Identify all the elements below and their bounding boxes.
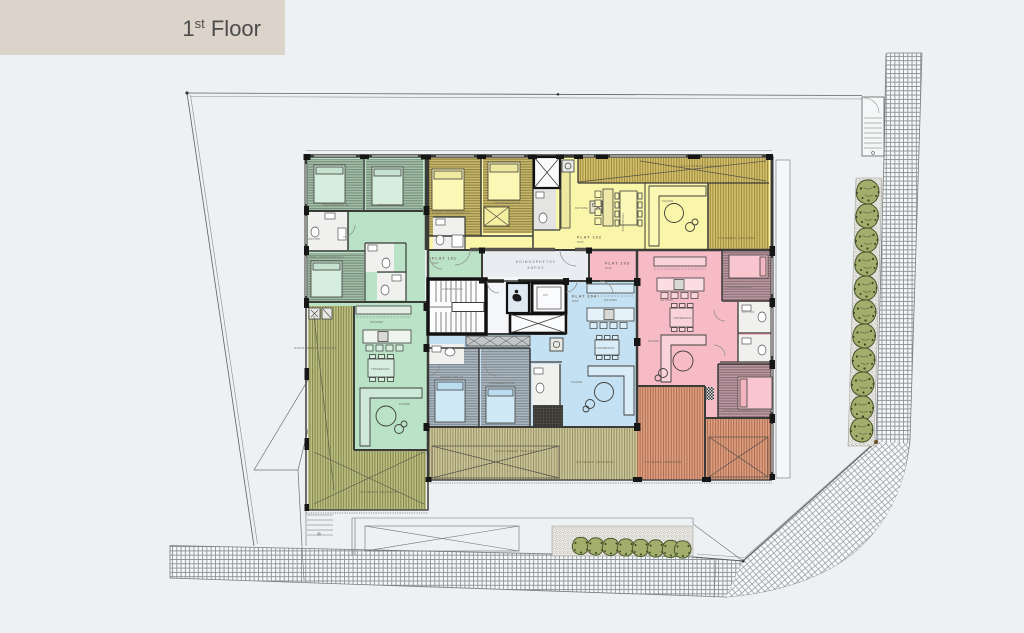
svg-text:FLAT 101: FLAT 101 <box>432 256 457 261</box>
svg-text:UNCOVERED VERANDA: UNCOVERED VERANDA <box>495 449 538 453</box>
svg-text:ΤΡΑΠΕΖΑΡΙΑ: ΤΡΑΠΕΖΑΡΙΑ <box>673 316 691 320</box>
svg-text:ΥΠΝΟΔΩΜΑΤΙΟ 02: ΥΠΝΟΔΩΜΑΤΙΟ 02 <box>726 285 753 289</box>
svg-text:ΚΥΡΙΩΣ ΥΠΝ. 01: ΚΥΡΙΩΣ ΥΠΝ. 01 <box>440 375 463 379</box>
svg-text:ΣΑΛΟΝΙ: ΣΑΛΟΝΙ <box>648 339 659 343</box>
svg-text:84ΟΡ: 84ΟΡ <box>577 240 584 244</box>
svg-text:ΣΑΛΟΝΙ: ΣΑΛΟΝΙ <box>571 380 582 384</box>
svg-text:ΛΟΥΤΡΟ: ΛΟΥΤΡΟ <box>308 237 321 241</box>
svg-text:ΚΟΥΖΙΝΑ: ΚΟΥΖΙΝΑ <box>660 298 673 302</box>
svg-text:ΣΑΛΟΝΙ: ΣΑΛΟΝΙ <box>399 402 410 406</box>
svg-text:ΤΡΑΠΕΖΑΡΙΑ: ΤΡΑΠΕΖΑΡΙΑ <box>371 367 389 371</box>
svg-text:UNCOVERED VERANDA: UNCOVERED VERANDA <box>294 346 337 350</box>
svg-text:COVERED VERANDA: COVERED VERANDA <box>644 460 682 464</box>
svg-text:ΥΠΝΟΔΩΜΑΤΙΟ 02: ΥΠΝΟΔΩΜΑΤΙΟ 02 <box>494 201 521 205</box>
svg-text:ΤΡΑΠΕΖΑΡΙΑ: ΤΡΑΠΕΖΑΡΙΑ <box>621 213 625 231</box>
svg-text:ΚΥΡΙΩΣ ΥΠΝΟΔΩΜΑΤΙΟ 01: ΚΥΡΙΩΣ ΥΠΝΟΔΩΜΑΤΙΟ 01 <box>723 408 761 412</box>
svg-text:ΣΑΛΟΝΙ: ΣΑΛΟΝΙ <box>662 199 673 203</box>
svg-text:LIFT: LIFT <box>543 293 549 297</box>
svg-text:ΛΟΥΤΡΟ: ΛΟΥΤΡΟ <box>742 310 755 314</box>
svg-text:ΚΟΥΖΙΝΑ: ΚΟΥΖΙΝΑ <box>575 206 588 210</box>
svg-text:ΚΥΡΙΩΣ ΥΠΝΟΔΩΜΑΤΙΟ 01: ΚΥΡΙΩΣ ΥΠΝΟΔΩΜΑΤΙΟ 01 <box>306 255 344 259</box>
svg-text:ΥΠΝΟΔΩΜΑΤΙΟ 02: ΥΠΝΟΔΩΜΑΤΙΟ 02 <box>322 203 349 207</box>
svg-text:ΚΟΥΖΙΝΑ: ΚΟΥΖΙΝΑ <box>370 320 383 324</box>
svg-text:ΤΡΑΠΕΖΑΡΙΑ: ΤΡΑΠΕΖΑΡΙΑ <box>596 346 614 350</box>
svg-text:FLAT 102: FLAT 102 <box>577 235 602 240</box>
svg-text:COVERED VERANDA: COVERED VERANDA <box>360 490 398 494</box>
svg-text:FLAT 104: FLAT 104 <box>572 294 597 299</box>
svg-text:ΥΠΝΟΔΩΜΑΤΙΟ 02: ΥΠΝΟΔΩΜΑΤΙΟ 02 <box>488 381 515 385</box>
svg-text:ΚΟΙΝΟΧΡΗΣΤΟΣ: ΚΟΙΝΟΧΡΗΣΤΟΣ <box>516 260 556 264</box>
svg-text:ΚΟΥΖΙΝΑ: ΚΟΥΖΙΝΑ <box>604 298 617 302</box>
svg-text:84ΟΡ: 84ΟΡ <box>605 266 612 270</box>
svg-text:COVERED VERANDA: COVERED VERANDA <box>718 236 756 240</box>
svg-text:ΚΛΙΜΑΚΟΣΤΑΣΙΟ: ΚΛΙΜΑΚΟΣΤΑΣΙΟ <box>442 287 463 291</box>
svg-text:FLAT 103: FLAT 103 <box>605 261 630 266</box>
svg-text:ΧΩΡΟΣ: ΧΩΡΟΣ <box>527 266 544 270</box>
svg-text:UNCOVERED VERANDA: UNCOVERED VERANDA <box>680 164 723 168</box>
svg-text:84ΟΡ: 84ΟΡ <box>432 261 439 265</box>
svg-text:1st Floor: 1st Floor <box>182 16 261 41</box>
svg-text:COVERED VERANDA: COVERED VERANDA <box>576 460 614 464</box>
svg-text:84ΟΡ: 84ΟΡ <box>572 299 579 303</box>
svg-text:ΚΥΡΙΩΣ ΥΠΝΟΔΩΜΑΤΙΟ 01: ΚΥΡΙΩΣ ΥΠΝΟΔΩΜΑΤΙΟ 01 <box>432 211 470 215</box>
svg-text:ΥΠΝΟΔΩΜΑΤΙΟ 03: ΥΠΝΟΔΩΜΑΤΙΟ 03 <box>378 203 405 207</box>
